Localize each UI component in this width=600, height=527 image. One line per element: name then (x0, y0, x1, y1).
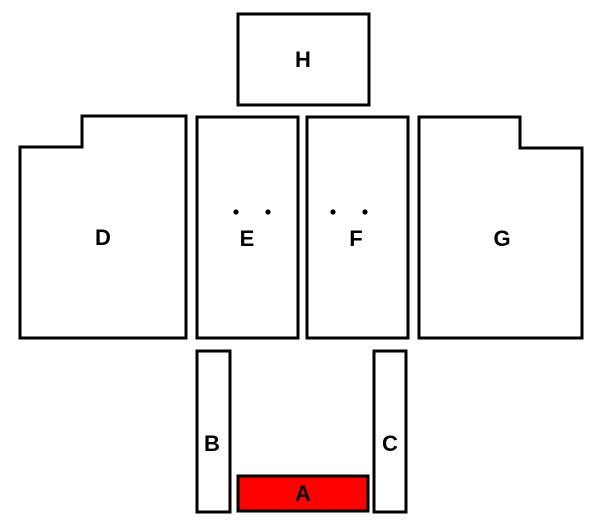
region-b: B (197, 351, 230, 512)
region-f-dot (330, 209, 335, 214)
region-b-label: B (204, 431, 220, 456)
region-c-label: C (382, 431, 398, 456)
region-c: C (374, 351, 406, 512)
region-d-label: D (95, 225, 111, 250)
region-d: D (20, 116, 186, 338)
region-f-label: F (349, 226, 362, 251)
room-layout-diagram: HDEFGBCA (0, 0, 600, 527)
region-g: G (419, 117, 582, 338)
region-e-label: E (240, 226, 255, 251)
region-h: H (238, 14, 369, 105)
region-g-label: G (493, 226, 510, 251)
region-f-dot (362, 209, 367, 214)
region-e: E (197, 117, 298, 338)
region-f: F (307, 117, 408, 338)
region-e-dot (265, 209, 270, 214)
diagram-canvas: HDEFGBCA (0, 0, 600, 527)
region-a: A (238, 476, 368, 511)
region-h-label: H (295, 47, 311, 72)
region-a-label: A (295, 481, 311, 506)
region-e-dot (233, 209, 238, 214)
